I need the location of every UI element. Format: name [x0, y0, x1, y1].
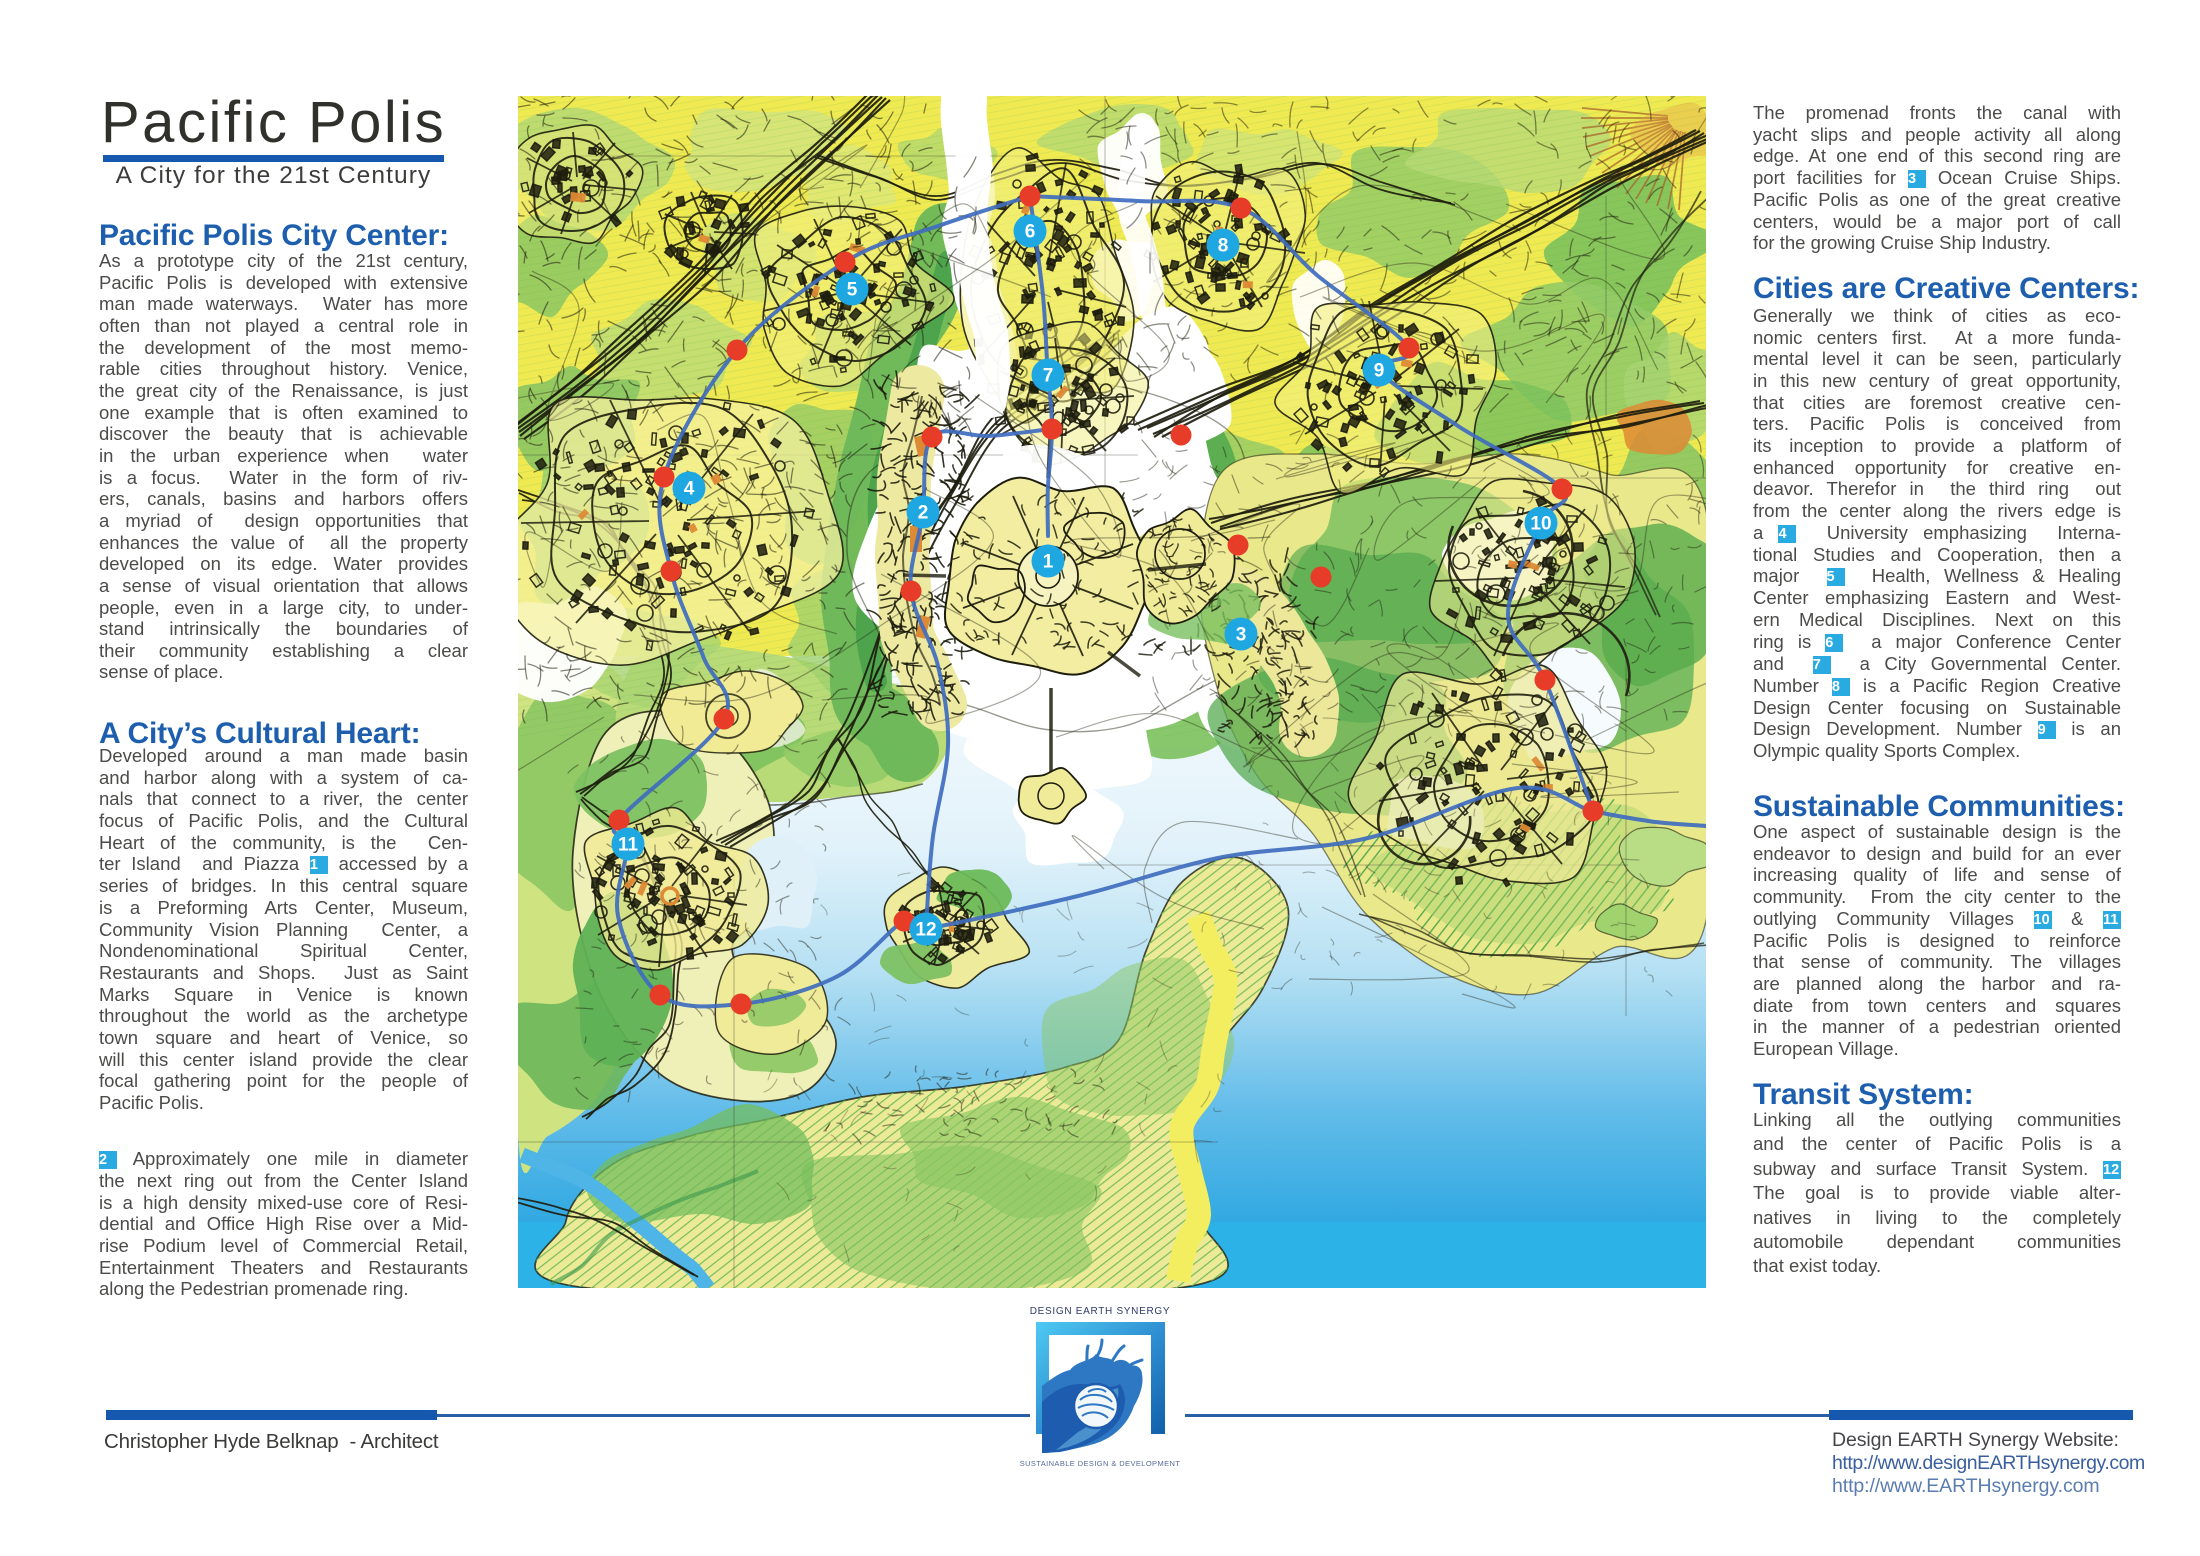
svg-text:8: 8 — [1218, 236, 1229, 257]
svg-text:6: 6 — [1025, 222, 1036, 243]
svg-text:10: 10 — [1530, 514, 1551, 535]
svg-text:3: 3 — [1236, 625, 1247, 646]
svg-text:2: 2 — [918, 503, 929, 524]
svg-text:1: 1 — [1043, 552, 1054, 573]
svg-text:11: 11 — [618, 835, 639, 856]
svg-text:5: 5 — [847, 280, 858, 301]
svg-text:12: 12 — [915, 920, 936, 941]
svg-text:4: 4 — [684, 479, 695, 500]
svg-text:9: 9 — [1374, 361, 1385, 382]
svg-text:7: 7 — [1043, 366, 1054, 387]
